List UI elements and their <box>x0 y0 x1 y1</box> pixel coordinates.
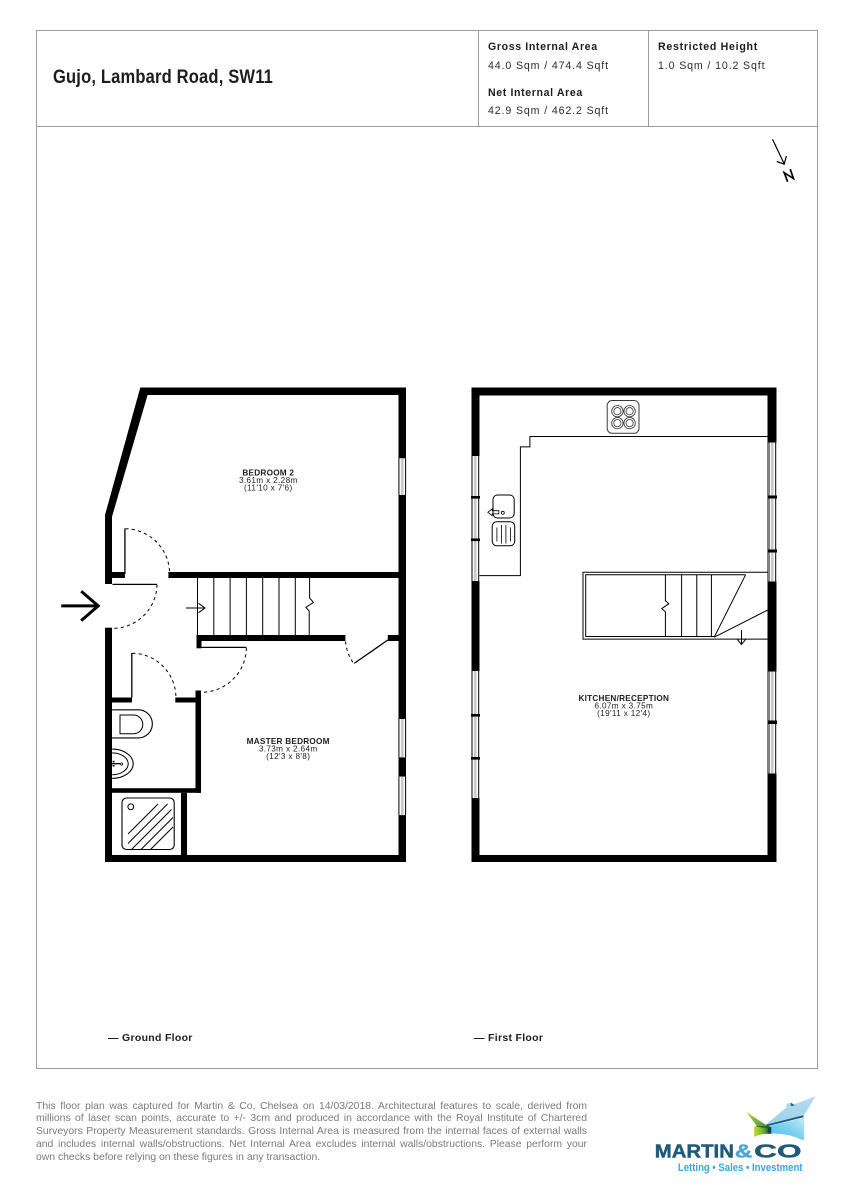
svg-text:(12'3 x 8'8): (12'3 x 8'8) <box>266 752 310 761</box>
svg-text:(19'11 x 12'4): (19'11 x 12'4) <box>597 709 650 718</box>
svg-text:CO: CO <box>754 1140 801 1161</box>
svg-text:Letting • Sales • Investment: Letting • Sales • Investment <box>678 1162 803 1174</box>
svg-text:&: & <box>735 1140 752 1161</box>
svg-text:(11'10 x 7'6): (11'10 x 7'6) <box>244 484 293 493</box>
svg-text:MARTIN: MARTIN <box>655 1140 734 1161</box>
